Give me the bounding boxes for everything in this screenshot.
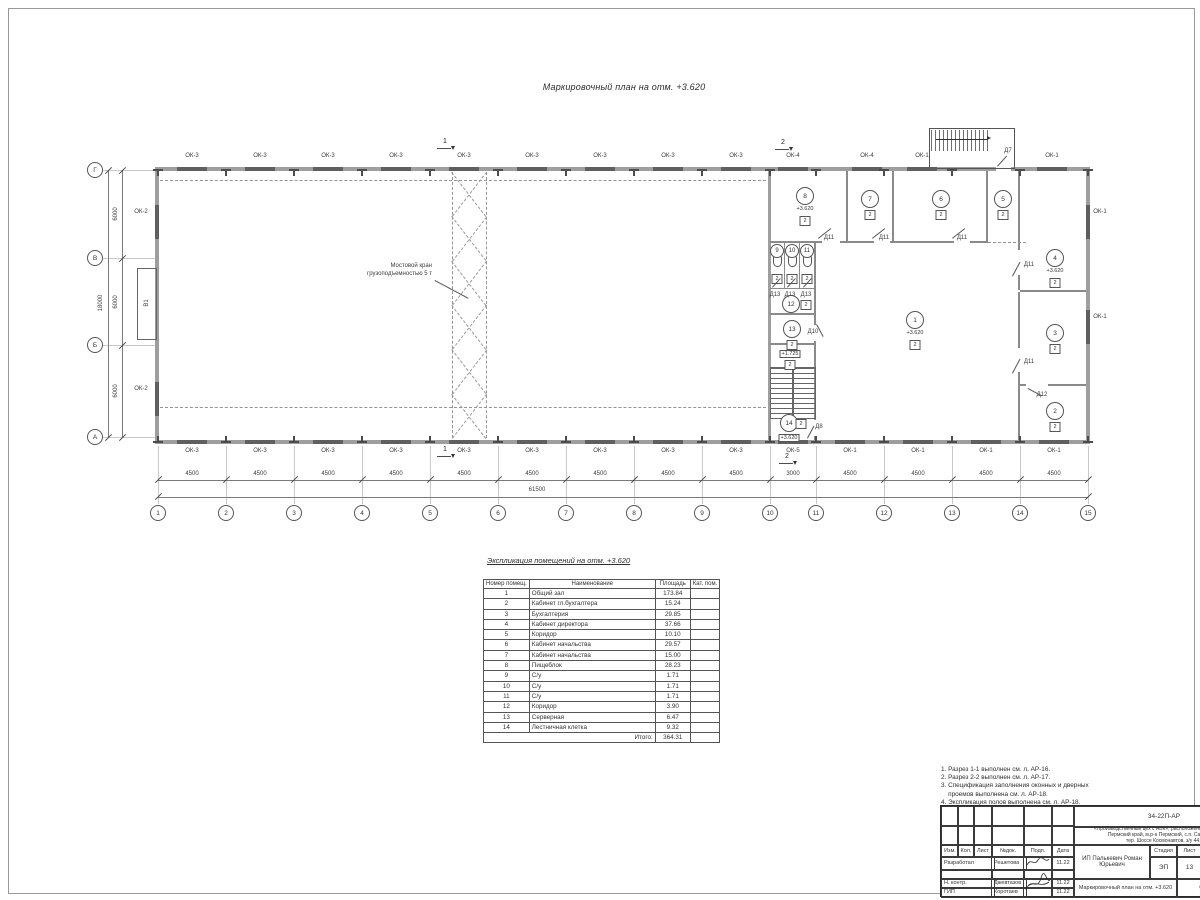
explication-cell: Бухгалтерия bbox=[529, 609, 655, 619]
explication-cell: 15.00 bbox=[655, 650, 690, 660]
category-box: 2 bbox=[1050, 344, 1061, 354]
explication-title: Экспликация помещений на отм. +3.620 bbox=[487, 556, 720, 565]
stair-flight bbox=[793, 367, 816, 419]
explication-cell: 28.23 bbox=[655, 661, 690, 671]
window-mark bbox=[1086, 205, 1090, 239]
explication-cell: 13 bbox=[484, 712, 530, 722]
dim-value: 6000 bbox=[113, 207, 119, 220]
dim-value: 4500 bbox=[843, 471, 856, 477]
window-label: ОК-1 bbox=[1045, 153, 1059, 159]
note-line: 3. Спецификация заполнения оконных и две… bbox=[941, 782, 1089, 790]
axis-line bbox=[498, 446, 499, 504]
window-label: ОК-3 bbox=[253, 153, 267, 159]
axis-line bbox=[103, 258, 155, 259]
axis-line bbox=[770, 446, 771, 504]
window-label: ОК-1 bbox=[1093, 209, 1107, 215]
level-mark: +3.620 bbox=[907, 330, 924, 336]
crane-note-line2: грузоподъемностью 5 т bbox=[322, 271, 432, 277]
dim-line bbox=[108, 170, 109, 437]
section-mark-arrow bbox=[451, 146, 455, 150]
explication-cell: Общий зал bbox=[529, 589, 655, 599]
window-mark bbox=[177, 440, 207, 444]
window-label: ОК-1 bbox=[979, 448, 993, 454]
room-number-13: 13 bbox=[783, 320, 801, 338]
column-symbol bbox=[633, 436, 635, 441]
explication-cell: Кабинет директора bbox=[529, 619, 655, 629]
window-mark bbox=[449, 440, 479, 444]
axis-bubble-В: В bbox=[87, 250, 103, 266]
exterior-stair-treads bbox=[931, 130, 991, 151]
window-mark bbox=[721, 440, 751, 444]
dim-value: 4500 bbox=[729, 471, 742, 477]
door-label: Д11 bbox=[879, 235, 889, 241]
window-mark bbox=[852, 167, 882, 171]
crane-rail-line bbox=[160, 180, 766, 181]
explication-cell: 173.84 bbox=[655, 589, 690, 599]
axis-line bbox=[103, 345, 155, 346]
tb-date: 11.22 bbox=[1051, 887, 1075, 898]
dim-value: 4500 bbox=[185, 471, 198, 477]
explication-table: Номер помещ. Наименование Площадь Кат. п… bbox=[483, 579, 720, 743]
dim-value: 4500 bbox=[979, 471, 992, 477]
signature bbox=[1023, 872, 1053, 896]
stair-direction-line bbox=[936, 139, 988, 140]
explication-cell: 15.24 bbox=[655, 599, 690, 609]
axis-bubble-2: 2 bbox=[218, 505, 234, 521]
window-mark bbox=[517, 440, 547, 444]
column-symbol bbox=[1015, 441, 1025, 443]
tb-stage-value: ЭП bbox=[1149, 856, 1178, 880]
tb-project: «Производственный цех с АБК», расположен… bbox=[1073, 826, 1200, 846]
explication-cell: 6.47 bbox=[655, 712, 690, 722]
door-label: Д13 bbox=[785, 292, 796, 298]
dim-value: 6000 bbox=[113, 384, 119, 397]
window-label: ОК-3 bbox=[389, 153, 403, 159]
notes-list: 1. Разрез 1-1 выполнен см. л. АР-16.2. Р… bbox=[941, 766, 1089, 807]
room-number-6: 6 bbox=[932, 190, 950, 208]
window-label: ОК-3 bbox=[185, 153, 199, 159]
explication-cell: Лестничная клетка bbox=[529, 722, 655, 732]
axis-bubble-5: 5 bbox=[422, 505, 438, 521]
explication-row: 10С/у1.71 bbox=[484, 681, 720, 691]
explication-row: 7Кабинет начальства15.00 bbox=[484, 650, 720, 660]
axis-line bbox=[816, 446, 817, 504]
explication-row: 2Кабинет гл.бухгалтера15.24 bbox=[484, 599, 720, 609]
tb-drawing-title: Маркировочный план на отм. +3.620 bbox=[1073, 878, 1178, 898]
column-symbol bbox=[225, 171, 227, 176]
partition bbox=[1018, 275, 1020, 290]
window-label: ОК-3 bbox=[661, 448, 675, 454]
door-label: Д13 bbox=[770, 292, 781, 298]
axis-line bbox=[103, 170, 155, 171]
total-value: 364.31 bbox=[655, 733, 690, 743]
explication-cell: 1.71 bbox=[655, 691, 690, 701]
column-symbol bbox=[429, 171, 431, 176]
dim-value: 4500 bbox=[321, 471, 334, 477]
column-symbol bbox=[1019, 436, 1021, 441]
axis-bubble-8: 8 bbox=[626, 505, 642, 521]
column-symbol bbox=[951, 171, 953, 176]
tb-grid-line bbox=[973, 806, 975, 846]
window-mark bbox=[177, 167, 207, 171]
column-symbol bbox=[765, 441, 775, 443]
level-mark: +3.620 bbox=[779, 434, 800, 442]
column-symbol bbox=[883, 171, 885, 176]
door-label: Д7 bbox=[1004, 148, 1011, 154]
crane-note-line1: Мостовой кран bbox=[322, 263, 432, 269]
explication-cell: 6 bbox=[484, 640, 530, 650]
dim-value: 4500 bbox=[253, 471, 266, 477]
column-symbol bbox=[157, 436, 159, 441]
room-number-4: 4 bbox=[1046, 249, 1064, 267]
column-symbol bbox=[947, 441, 957, 443]
explication-cell: Серверная bbox=[529, 712, 655, 722]
partition bbox=[890, 241, 954, 243]
dim-value: 4500 bbox=[911, 471, 924, 477]
room-number-2: 2 bbox=[1046, 402, 1064, 420]
drawing-sheet: Маркировочный план на отм. +3.620 bbox=[0, 0, 1200, 900]
explication-cell: 12 bbox=[484, 702, 530, 712]
window-label: ОК-3 bbox=[729, 448, 743, 454]
explication-row: 14Лестничная клетка9.32 bbox=[484, 722, 720, 732]
col-header-area: Площадь bbox=[655, 580, 690, 589]
explication-cell: 9 bbox=[484, 671, 530, 681]
dim-value: 4500 bbox=[457, 471, 470, 477]
tb-name: Коротаев bbox=[991, 887, 1027, 898]
category-box: 2 bbox=[998, 210, 1009, 220]
explication-cell: 10 bbox=[484, 681, 530, 691]
explication-cell: С/у bbox=[529, 691, 655, 701]
explication-cell bbox=[690, 589, 720, 599]
axis-line bbox=[362, 446, 363, 504]
window-mark bbox=[245, 167, 275, 171]
dim-value: 3000 bbox=[786, 471, 799, 477]
column-symbol bbox=[425, 441, 435, 443]
explication-row: 8Пищеблок28.23 bbox=[484, 661, 720, 671]
column-symbol bbox=[811, 441, 821, 443]
gate-label: В1 bbox=[144, 299, 150, 306]
door-label: Д11 bbox=[957, 235, 967, 241]
column-symbol bbox=[1019, 171, 1021, 176]
category-box: 2 bbox=[787, 340, 798, 350]
column-symbol bbox=[357, 441, 367, 443]
explication-cell bbox=[690, 712, 720, 722]
window-label: ОК-3 bbox=[457, 153, 471, 159]
room-number-1: 1 bbox=[906, 311, 924, 329]
partition bbox=[986, 171, 988, 241]
column-symbol bbox=[361, 436, 363, 441]
partition bbox=[1020, 384, 1026, 386]
explication-cell: Кабинет гл.бухгалтера bbox=[529, 599, 655, 609]
column-symbol bbox=[951, 436, 953, 441]
category-box: 2 bbox=[801, 300, 812, 310]
window-mark bbox=[971, 440, 1001, 444]
category-box: 2 bbox=[936, 210, 947, 220]
section-mark-label: 1 bbox=[443, 138, 447, 145]
col-header-name: Наименование bbox=[529, 580, 655, 589]
column-symbol bbox=[565, 436, 567, 441]
floor-plan: В1 Мостовой кран грузоподъемностью 5 т +… bbox=[0, 0, 1200, 900]
partition bbox=[1018, 171, 1020, 250]
explication-row: 3Бухгалтерия29.85 bbox=[484, 609, 720, 619]
explication-row: 5Коридор10.10 bbox=[484, 630, 720, 640]
col-header-kat: Кат. пом. bbox=[690, 580, 720, 589]
column-symbol bbox=[361, 171, 363, 176]
explication-row: 13Серверная6.47 bbox=[484, 712, 720, 722]
window-mark bbox=[903, 440, 933, 444]
axis-line bbox=[226, 446, 227, 504]
note-line: 2. Разрез 2-2 выполнен см. л. АР-17. bbox=[941, 774, 1089, 782]
section-mark-label: 1 bbox=[443, 446, 447, 453]
room-number-11: 11 bbox=[800, 244, 814, 258]
col-header-num: Номер помещ. bbox=[484, 580, 530, 589]
partition bbox=[1018, 372, 1020, 440]
section-mark-arrow bbox=[451, 454, 455, 458]
window-mark bbox=[907, 167, 937, 171]
explication-row: 6Кабинет начальства29.57 bbox=[484, 640, 720, 650]
partition bbox=[1048, 384, 1086, 386]
door-label: Д8 bbox=[815, 424, 822, 430]
window-mark bbox=[313, 440, 343, 444]
explication-row: 11С/у1.71 bbox=[484, 691, 720, 701]
axis-bubble-13: 13 bbox=[944, 505, 960, 521]
partition bbox=[814, 241, 816, 325]
window-mark bbox=[449, 167, 479, 171]
window-label: ОК-2 bbox=[134, 386, 148, 392]
partition bbox=[970, 241, 988, 243]
column-symbol bbox=[497, 436, 499, 441]
category-box: 2 bbox=[865, 210, 876, 220]
dim-total: 61500 bbox=[529, 487, 546, 493]
door-label: Д13 bbox=[801, 292, 812, 298]
window-label: ОК-3 bbox=[185, 448, 199, 454]
dim-value: 4500 bbox=[661, 471, 674, 477]
column-symbol bbox=[561, 441, 571, 443]
window-label: ОК-3 bbox=[389, 448, 403, 454]
total-label: Итого: bbox=[484, 733, 656, 743]
column-symbol bbox=[289, 441, 299, 443]
column-symbol bbox=[769, 171, 771, 176]
window-label: ОК-3 bbox=[457, 448, 471, 454]
axis-bubble-1: 1 bbox=[150, 505, 166, 521]
category-box: 2 bbox=[910, 340, 921, 350]
column-symbol bbox=[1087, 436, 1089, 441]
window-label: ОК-1 bbox=[915, 153, 929, 159]
explication-cell bbox=[690, 650, 720, 660]
stair-arrowhead bbox=[987, 136, 991, 140]
explication-cell bbox=[690, 691, 720, 701]
room-number-9: 9 bbox=[770, 244, 784, 258]
column-symbol bbox=[493, 441, 503, 443]
column-symbol bbox=[293, 171, 295, 176]
explication-cell bbox=[690, 661, 720, 671]
window-mark bbox=[653, 167, 683, 171]
explication-cell: 4 bbox=[484, 619, 530, 629]
title-block: Изм. Кол. Лист №док. Подп. Дата Разработ… bbox=[940, 805, 1200, 897]
door-label: Д11 bbox=[1024, 262, 1034, 268]
wc-front-wall bbox=[770, 288, 814, 289]
stair-flight bbox=[770, 367, 793, 419]
tb-role: ГИП bbox=[941, 887, 995, 898]
column-symbol bbox=[221, 441, 231, 443]
window-mark bbox=[1086, 310, 1090, 344]
axis-bubble-14: 14 bbox=[1012, 505, 1028, 521]
window-mark bbox=[245, 440, 275, 444]
category-box: 2 bbox=[796, 419, 807, 429]
explication-cell bbox=[690, 722, 720, 732]
axis-bubble-12: 12 bbox=[876, 505, 892, 521]
explication-cell: Кабинет начальства bbox=[529, 640, 655, 650]
partition bbox=[846, 171, 848, 241]
dim-value: 4500 bbox=[525, 471, 538, 477]
explication-cell: Коридор bbox=[529, 630, 655, 640]
axis-line bbox=[103, 437, 155, 438]
explication-cell: 3 bbox=[484, 609, 530, 619]
window-label: ОК-3 bbox=[321, 448, 335, 454]
column-symbol bbox=[293, 436, 295, 441]
window-label: ОК-3 bbox=[593, 153, 607, 159]
axis-bubble-10: 10 bbox=[762, 505, 778, 521]
column-symbol bbox=[429, 436, 431, 441]
column-symbol bbox=[1087, 171, 1089, 176]
explication-cell: 10.10 bbox=[655, 630, 690, 640]
partition bbox=[892, 171, 894, 241]
axis-bubble-А: А bbox=[87, 429, 103, 445]
window-label: ОК-1 bbox=[1093, 314, 1107, 320]
window-mark bbox=[778, 167, 808, 171]
explication-cell bbox=[690, 640, 720, 650]
axis-bubble-11: 11 bbox=[808, 505, 824, 521]
door-label: Д11 bbox=[1024, 359, 1034, 365]
explication-cell bbox=[690, 702, 720, 712]
column-symbol bbox=[497, 171, 499, 176]
window-mark bbox=[517, 167, 547, 171]
axis-line bbox=[294, 446, 295, 504]
tb-grid-cell bbox=[941, 825, 1075, 846]
room-number-7: 7 bbox=[861, 190, 879, 208]
column-symbol bbox=[153, 441, 163, 443]
tb-sheet-value: 13 bbox=[1176, 856, 1200, 880]
column-symbol bbox=[629, 441, 639, 443]
window-mark bbox=[1037, 167, 1067, 171]
explication-block: Экспликация помещений на отм. +3.620 Ном… bbox=[483, 556, 720, 743]
column-symbol bbox=[879, 441, 889, 443]
tb-doc-number: 34-22П-АР bbox=[1073, 806, 1200, 828]
explication-cell: 1 bbox=[484, 589, 530, 599]
column-symbol bbox=[1083, 441, 1093, 443]
explication-cell: 2 bbox=[484, 599, 530, 609]
explication-cell: Коридор bbox=[529, 702, 655, 712]
explication-row: 12Коридор3.90 bbox=[484, 702, 720, 712]
section-mark-line bbox=[437, 148, 451, 149]
tb-grid-line bbox=[1023, 806, 1025, 846]
section-mark-line bbox=[775, 149, 789, 150]
dim-line bbox=[122, 170, 123, 437]
axis-bubble-6: 6 bbox=[490, 505, 506, 521]
axis-bubble-15: 15 bbox=[1080, 505, 1096, 521]
window-label: ОК-4 bbox=[860, 153, 874, 159]
partition bbox=[1018, 292, 1020, 348]
explication-cell: С/у bbox=[529, 681, 655, 691]
window-mark bbox=[1039, 440, 1069, 444]
explication-cell: 7 bbox=[484, 650, 530, 660]
level-mark: +3.620 bbox=[1047, 268, 1064, 274]
tb-client: ИП Палькевич Роман Юрьевич bbox=[1073, 844, 1151, 880]
axis-line bbox=[566, 446, 567, 504]
section-mark-arrow bbox=[793, 461, 797, 465]
window-label: ОК-1 bbox=[911, 448, 925, 454]
column-symbol bbox=[701, 171, 703, 176]
window-label: ОК-2 bbox=[134, 209, 148, 215]
room-number-5: 5 bbox=[994, 190, 1012, 208]
tb-company: ООО "Альм bbox=[1176, 878, 1200, 898]
door-label: Д11 bbox=[824, 235, 834, 241]
explication-cell: Пищеблок bbox=[529, 661, 655, 671]
column-symbol bbox=[157, 171, 159, 176]
explication-cell: 14 bbox=[484, 722, 530, 732]
window-label: ОК-3 bbox=[253, 448, 267, 454]
section-mark-label: 2 bbox=[785, 453, 789, 460]
section-mark-arrow bbox=[789, 147, 793, 151]
window-label: ОК-3 bbox=[525, 448, 539, 454]
section-mark-label: 2 bbox=[781, 139, 785, 146]
explication-cell bbox=[690, 599, 720, 609]
explication-cell: 1.71 bbox=[655, 681, 690, 691]
axis-line bbox=[430, 446, 431, 504]
explication-cell: С/у bbox=[529, 671, 655, 681]
category-box: 2 bbox=[800, 216, 811, 226]
explication-cell bbox=[690, 630, 720, 640]
column-symbol bbox=[633, 171, 635, 176]
explication-cell: 11 bbox=[484, 691, 530, 701]
column-symbol bbox=[815, 171, 817, 176]
window-label: ОК-3 bbox=[593, 448, 607, 454]
note-line: проемов выполнена см. л. АР-18. bbox=[941, 791, 1089, 799]
window-mark bbox=[585, 440, 615, 444]
category-box: 2 bbox=[1050, 278, 1061, 288]
room-number-3: 3 bbox=[1046, 324, 1064, 342]
explication-row: 4Кабинет директора37.66 bbox=[484, 619, 720, 629]
explication-cell: 29.57 bbox=[655, 640, 690, 650]
dashed-boundary bbox=[988, 242, 1026, 243]
window-mark bbox=[381, 167, 411, 171]
dim-value: 4500 bbox=[593, 471, 606, 477]
window-mark bbox=[721, 167, 751, 171]
column-symbol bbox=[565, 171, 567, 176]
window-label: ОК-1 bbox=[843, 448, 857, 454]
tb-grid-line bbox=[957, 806, 959, 846]
signature bbox=[1025, 855, 1051, 869]
level-mark: +1.725 bbox=[780, 350, 801, 358]
tb-grid-line bbox=[1051, 806, 1053, 846]
partition bbox=[770, 313, 814, 315]
dim-line bbox=[158, 497, 1088, 498]
explication-cell: 37.66 bbox=[655, 619, 690, 629]
axis-bubble-3: 3 bbox=[286, 505, 302, 521]
explication-cell: 3.90 bbox=[655, 702, 690, 712]
axis-bubble-7: 7 bbox=[558, 505, 574, 521]
axis-line bbox=[1020, 446, 1021, 504]
explication-cell bbox=[690, 681, 720, 691]
explication-row: 1Общий зал173.84 bbox=[484, 589, 720, 599]
window-label: ОК-1 bbox=[1047, 448, 1061, 454]
dim-value: 6000 bbox=[113, 295, 119, 308]
door-label: Д10 bbox=[808, 329, 819, 335]
explication-cell: 1.71 bbox=[655, 671, 690, 681]
tb-grid-cell bbox=[941, 806, 1075, 827]
window-mark bbox=[653, 440, 683, 444]
window-mark bbox=[313, 167, 343, 171]
